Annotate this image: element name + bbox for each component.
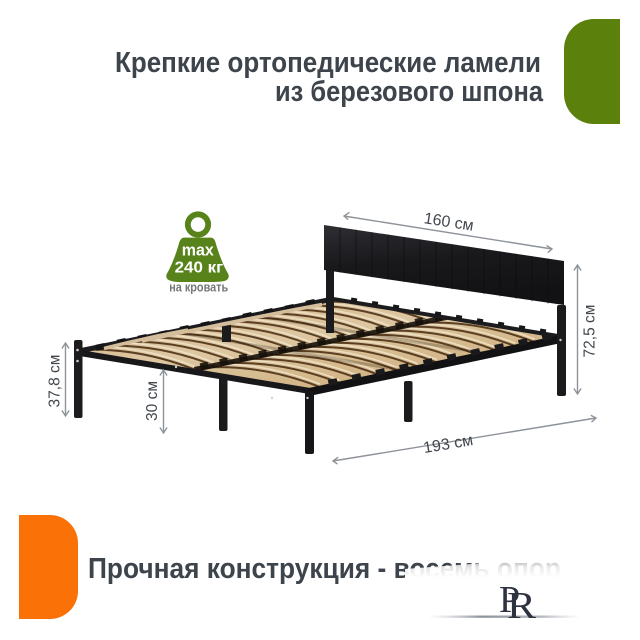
svg-text:240 кг: 240 кг bbox=[175, 259, 224, 276]
svg-text:на кровать: на кровать bbox=[169, 280, 228, 295]
svg-text:из березового шпона: из березового шпона bbox=[275, 76, 544, 108]
svg-text:37,8 см: 37,8 см bbox=[47, 355, 64, 408]
svg-text:30 см: 30 см bbox=[144, 381, 161, 421]
svg-text:max: max bbox=[182, 241, 215, 259]
svg-text:R: R bbox=[507, 585, 537, 627]
svg-text:Крепкие ортопедические ламели: Крепкие ортопедические ламели bbox=[115, 47, 541, 79]
svg-text:72,5 см: 72,5 см bbox=[582, 305, 599, 358]
